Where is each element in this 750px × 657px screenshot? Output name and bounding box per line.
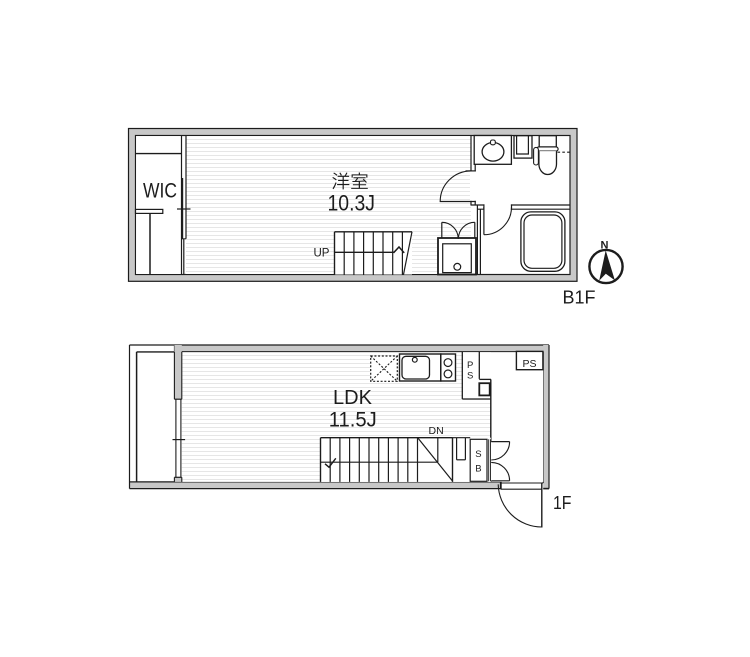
svg-text:PS: PS [523, 358, 537, 370]
svg-text:WIC: WIC [143, 180, 177, 203]
svg-text:B1F: B1F [563, 287, 596, 307]
svg-text:P: P [467, 360, 473, 371]
svg-text:B: B [475, 464, 481, 475]
svg-text:1F: 1F [553, 493, 572, 513]
svg-text:S: S [467, 371, 473, 382]
svg-text:11.5J: 11.5J [329, 408, 377, 431]
svg-text:S: S [475, 449, 481, 460]
svg-text:UP: UP [314, 248, 330, 260]
svg-text:10.3J: 10.3J [328, 191, 376, 216]
svg-text:LDK: LDK [333, 387, 373, 409]
svg-text:DN: DN [429, 425, 444, 437]
